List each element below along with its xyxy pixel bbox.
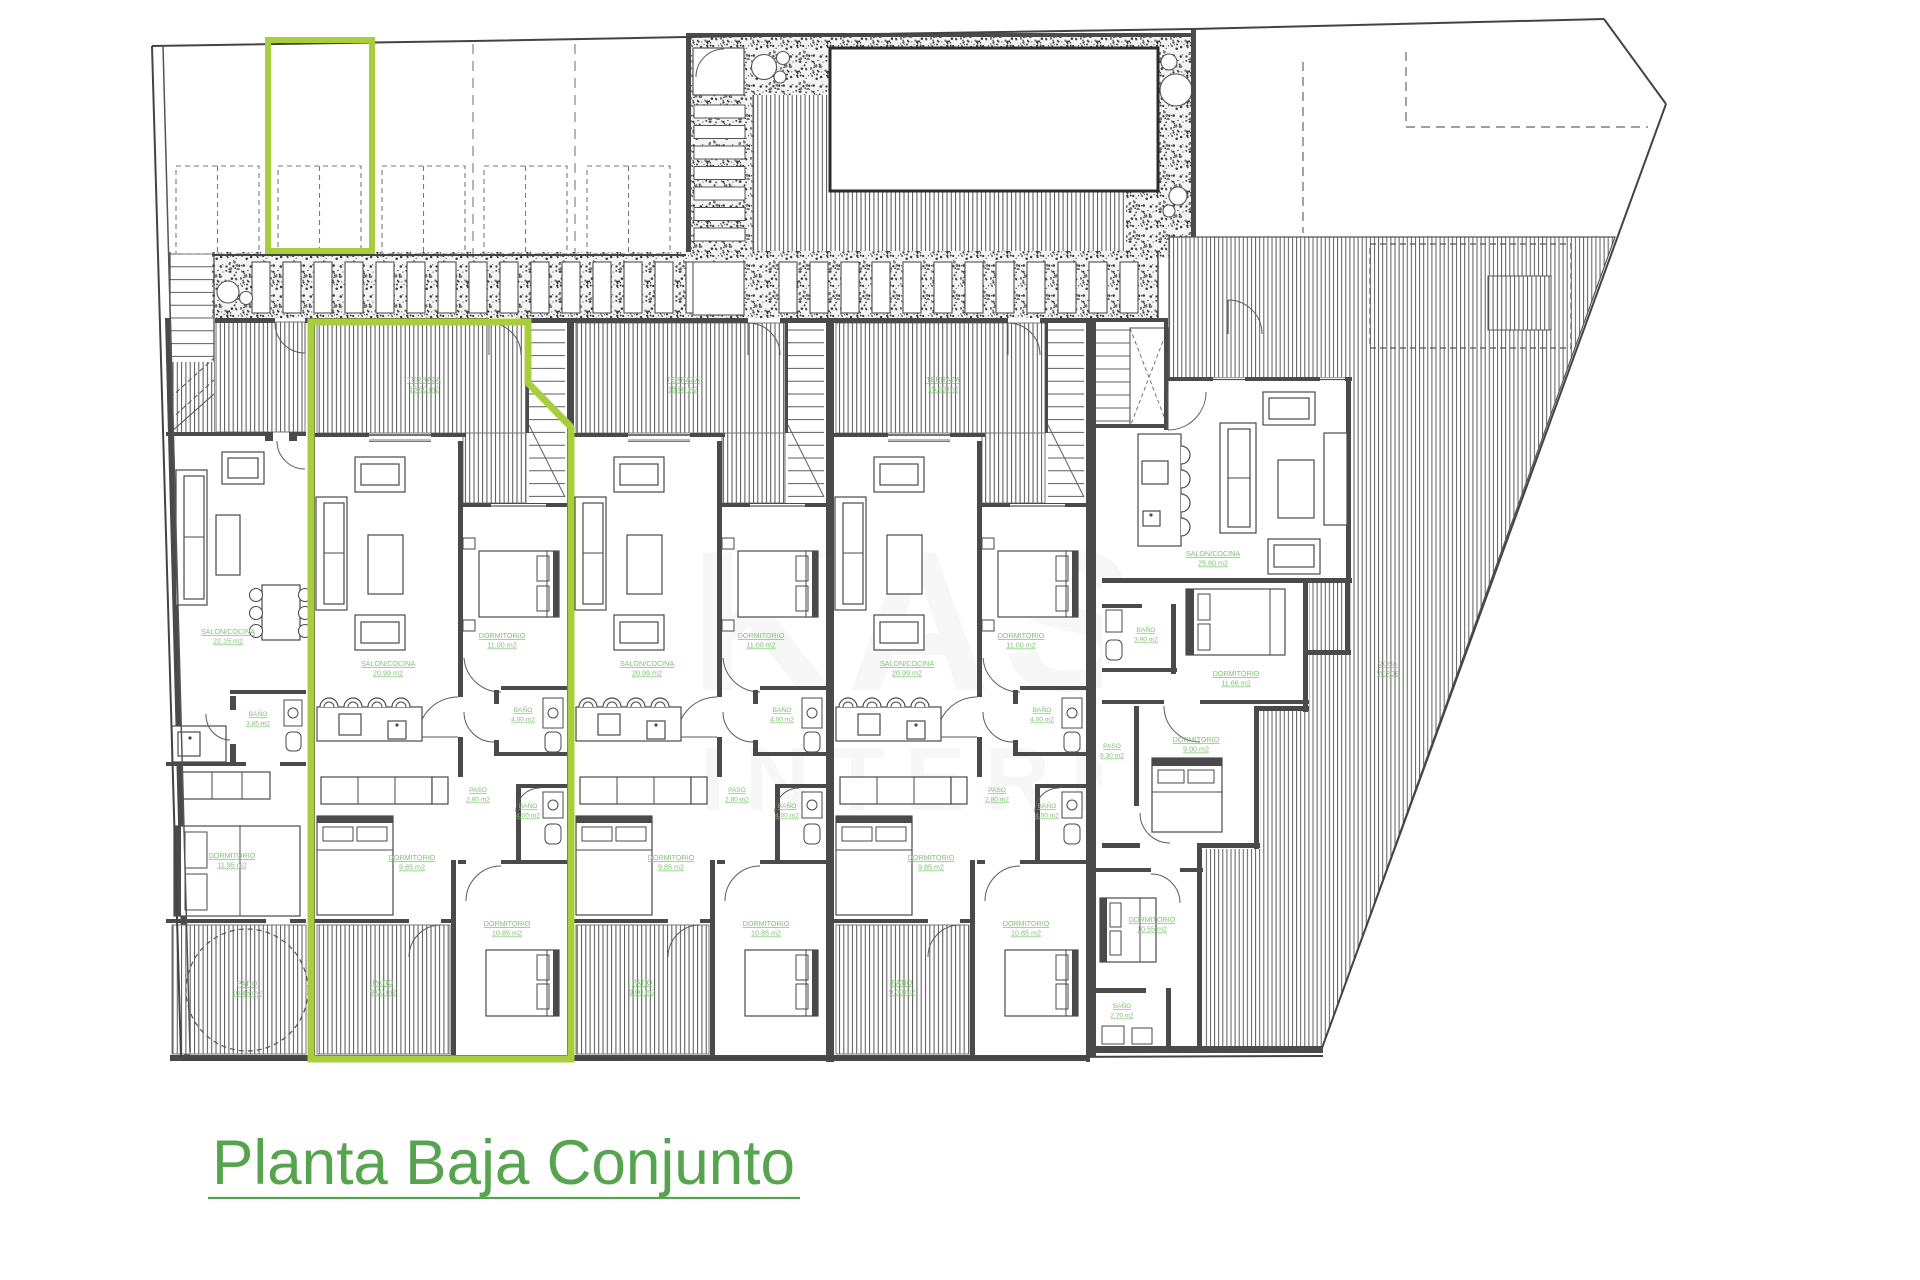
svg-text:PASO: PASO bbox=[469, 787, 487, 794]
svg-text:11.00 m2: 11.00 m2 bbox=[746, 641, 775, 650]
svg-text:DORMITORIO: DORMITORIO bbox=[484, 919, 531, 928]
svg-text:4.00 m2: 4.00 m2 bbox=[1035, 813, 1059, 820]
svg-text:15.60 m2: 15.60 m2 bbox=[928, 385, 958, 394]
svg-text:PATIO: PATIO bbox=[237, 979, 258, 988]
svg-text:6.30 m2: 6.30 m2 bbox=[1100, 753, 1124, 760]
svg-text:DORMITORIO: DORMITORIO bbox=[1173, 735, 1220, 744]
svg-text:SALON/COCINA: SALON/COCINA bbox=[620, 659, 675, 668]
svg-text:DORMITORIO: DORMITORIO bbox=[1003, 919, 1050, 928]
svg-text:10.85 m2: 10.85 m2 bbox=[492, 929, 522, 938]
svg-text:11.00 m2: 11.00 m2 bbox=[487, 641, 516, 650]
svg-text:10.55 m2: 10.55 m2 bbox=[1137, 925, 1167, 934]
svg-text:PASO: PASO bbox=[988, 787, 1006, 794]
svg-text:BAÑO: BAÑO bbox=[514, 705, 533, 714]
svg-text:DORMITORIO: DORMITORIO bbox=[389, 853, 436, 862]
svg-text:DORMITORIO: DORMITORIO bbox=[1129, 915, 1176, 924]
svg-text:11.95 m2: 11.95 m2 bbox=[217, 861, 246, 870]
svg-text:10.45 m2: 10.45 m2 bbox=[232, 989, 262, 998]
svg-text:2.80 m2: 2.80 m2 bbox=[466, 797, 490, 804]
svg-text:TERRAZA: TERRAZA bbox=[926, 375, 960, 384]
svg-text:SALON/COCINA: SALON/COCINA bbox=[361, 659, 416, 668]
svg-text:BAÑO: BAÑO bbox=[1137, 625, 1156, 634]
svg-text:4.00 m2: 4.00 m2 bbox=[511, 717, 535, 724]
svg-text:20.99 m2: 20.99 m2 bbox=[892, 669, 922, 678]
svg-text:Planta Baja Conjunto: Planta Baja Conjunto bbox=[212, 1128, 795, 1198]
svg-text:BAÑO: BAÑO bbox=[778, 801, 797, 810]
svg-text:BAÑO: BAÑO bbox=[1038, 801, 1057, 810]
svg-text:9.85 m2: 9.85 m2 bbox=[658, 863, 684, 872]
svg-text:4.00 m2: 4.00 m2 bbox=[1030, 717, 1054, 724]
svg-text:9.85 m2: 9.85 m2 bbox=[399, 863, 425, 872]
svg-text:9.00 m2: 9.00 m2 bbox=[889, 988, 915, 997]
svg-text:DORMITORIO: DORMITORIO bbox=[1213, 669, 1260, 678]
svg-text:11.00 m2: 11.00 m2 bbox=[1006, 641, 1035, 650]
svg-text:22.15 m2: 22.15 m2 bbox=[213, 637, 243, 646]
svg-text:9.00 m2: 9.00 m2 bbox=[1183, 745, 1209, 754]
svg-text:DORMITORIO: DORMITORIO bbox=[479, 631, 526, 640]
svg-text:15.60 m2: 15.60 m2 bbox=[668, 385, 698, 394]
svg-text:20.99 m2: 20.99 m2 bbox=[373, 669, 403, 678]
svg-text:ZONA: ZONA bbox=[1379, 661, 1398, 668]
svg-text:4.00 m2: 4.00 m2 bbox=[770, 717, 794, 724]
svg-text:BAÑO: BAÑO bbox=[249, 709, 268, 718]
svg-text:10.85 m2: 10.85 m2 bbox=[751, 929, 781, 938]
svg-text:25.80 m2: 25.80 m2 bbox=[1198, 559, 1228, 568]
svg-text:BAÑO: BAÑO bbox=[519, 801, 538, 810]
svg-text:11.66 m2: 11.66 m2 bbox=[1221, 679, 1250, 688]
svg-text:DORMITORIO: DORMITORIO bbox=[998, 631, 1045, 640]
svg-text:10.85 m2: 10.85 m2 bbox=[1011, 929, 1041, 938]
svg-text:PASO: PASO bbox=[728, 787, 746, 794]
svg-text:PATIO: PATIO bbox=[373, 978, 394, 987]
svg-text:DORMITORIO: DORMITORIO bbox=[908, 853, 955, 862]
svg-text:VERDE: VERDE bbox=[1377, 671, 1400, 678]
svg-text:3.90 m2: 3.90 m2 bbox=[1134, 637, 1158, 644]
svg-text:15.60 m2: 15.60 m2 bbox=[409, 385, 439, 394]
svg-text:20.99 m2: 20.99 m2 bbox=[632, 669, 662, 678]
svg-text:9.00 m2: 9.00 m2 bbox=[629, 988, 655, 997]
svg-text:PATIO: PATIO bbox=[892, 978, 913, 987]
svg-text:9.00 m2: 9.00 m2 bbox=[370, 988, 396, 997]
svg-text:4.00 m2: 4.00 m2 bbox=[775, 813, 799, 820]
svg-text:SALON/COCINA: SALON/COCINA bbox=[1186, 549, 1241, 558]
svg-text:DORMITORIO: DORMITORIO bbox=[738, 631, 785, 640]
svg-text:TERRAZA: TERRAZA bbox=[407, 375, 441, 384]
svg-text:BAÑO: BAÑO bbox=[1033, 705, 1052, 714]
svg-text:DORMITORIO: DORMITORIO bbox=[648, 853, 695, 862]
svg-text:2.80 m2: 2.80 m2 bbox=[725, 797, 749, 804]
svg-text:PATIO: PATIO bbox=[632, 978, 653, 987]
svg-text:DORMITORIO: DORMITORIO bbox=[743, 919, 790, 928]
svg-text:BAÑO: BAÑO bbox=[773, 705, 792, 714]
svg-text:SALON/COCINA: SALON/COCINA bbox=[201, 627, 256, 636]
svg-text:2.80 m2: 2.80 m2 bbox=[985, 797, 1009, 804]
svg-text:3.85 m2: 3.85 m2 bbox=[246, 721, 270, 728]
svg-text:4.00 m2: 4.00 m2 bbox=[516, 813, 540, 820]
svg-text:SALON/COCINA: SALON/COCINA bbox=[880, 659, 935, 668]
svg-text:PASO: PASO bbox=[1103, 743, 1121, 750]
svg-text:TERRAZA: TERRAZA bbox=[666, 375, 700, 384]
svg-text:9.85 m2: 9.85 m2 bbox=[918, 863, 944, 872]
svg-text:2.70 m2: 2.70 m2 bbox=[1110, 1013, 1134, 1020]
svg-text:DORMITORIO: DORMITORIO bbox=[209, 851, 256, 860]
svg-text:BAÑO: BAÑO bbox=[1113, 1001, 1131, 1010]
